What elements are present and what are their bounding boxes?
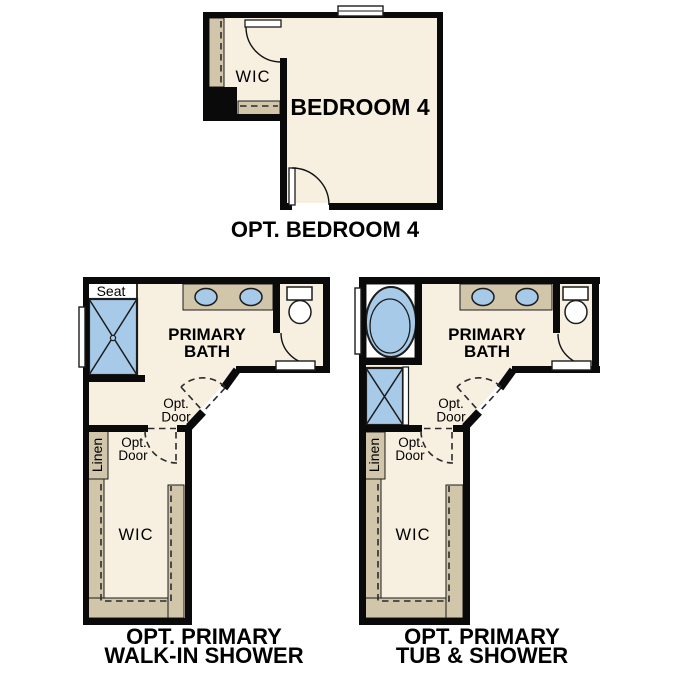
door-leaf [276,361,315,370]
plan-caption-line2: TUB & SHOWER [396,643,568,668]
wall-pier [203,87,237,121]
opt-door-label: Door [395,448,425,463]
toilet [287,287,312,324]
door-leaf [245,20,281,27]
sink [472,289,494,306]
door-leaf [289,168,295,205]
plan-opt-bedroom4: WIC BEDROOM 4 OPT. BEDROOM 4 [203,6,443,242]
plan-caption: OPT. BEDROOM 4 [231,217,420,242]
wic-label: WIC [118,526,153,544]
toilet-nook-wall [553,284,560,333]
shower [366,367,409,425]
shower-drain [110,335,115,340]
opt-door-label: Door [118,448,148,463]
door-leaf [552,361,591,370]
floorplan-sheet: WIC BEDROOM 4 OPT. BEDROOM 4 [0,0,687,687]
bath-label-line2: BATH [464,342,510,361]
wic-label: WIC [395,526,430,544]
room-label: BEDROOM 4 [290,94,430,120]
floorplan-drawing: WIC BEDROOM 4 OPT. BEDROOM 4 [0,0,687,687]
vanity [460,284,552,310]
window-symbol [79,307,85,367]
window-symbol [355,288,361,354]
wic-label: WIC [235,68,270,86]
toilet [563,287,588,324]
plan-opt-primary-walkin-shower: Seat PRIMARY BATH Opt. Door Opt. Door Li… [79,277,330,668]
linen-label: Linen [366,438,382,472]
opt-door-label: Door [161,410,191,425]
sink [195,289,217,306]
closet-shelf-bottom [238,101,280,115]
plan-opt-primary-tub-shower: PRIMARY BATH Opt. Door Opt. Door Linen W… [355,277,600,668]
linen-label: Linen [89,438,105,472]
toilet-nook-wall [273,284,280,333]
shower-glass [403,367,409,425]
plan-caption-line2: WALK-IN SHOWER [104,643,303,668]
window-symbol [338,6,383,16]
bathtub [366,287,416,357]
tub-side-wall [415,284,422,365]
seat-label: Seat [97,283,126,299]
bath-label-line2: BATH [184,342,230,361]
tub-foot-wall [359,358,422,365]
sink [240,289,262,306]
opt-door-label: Door [436,410,466,425]
sink [516,289,538,306]
vanity [183,284,273,310]
